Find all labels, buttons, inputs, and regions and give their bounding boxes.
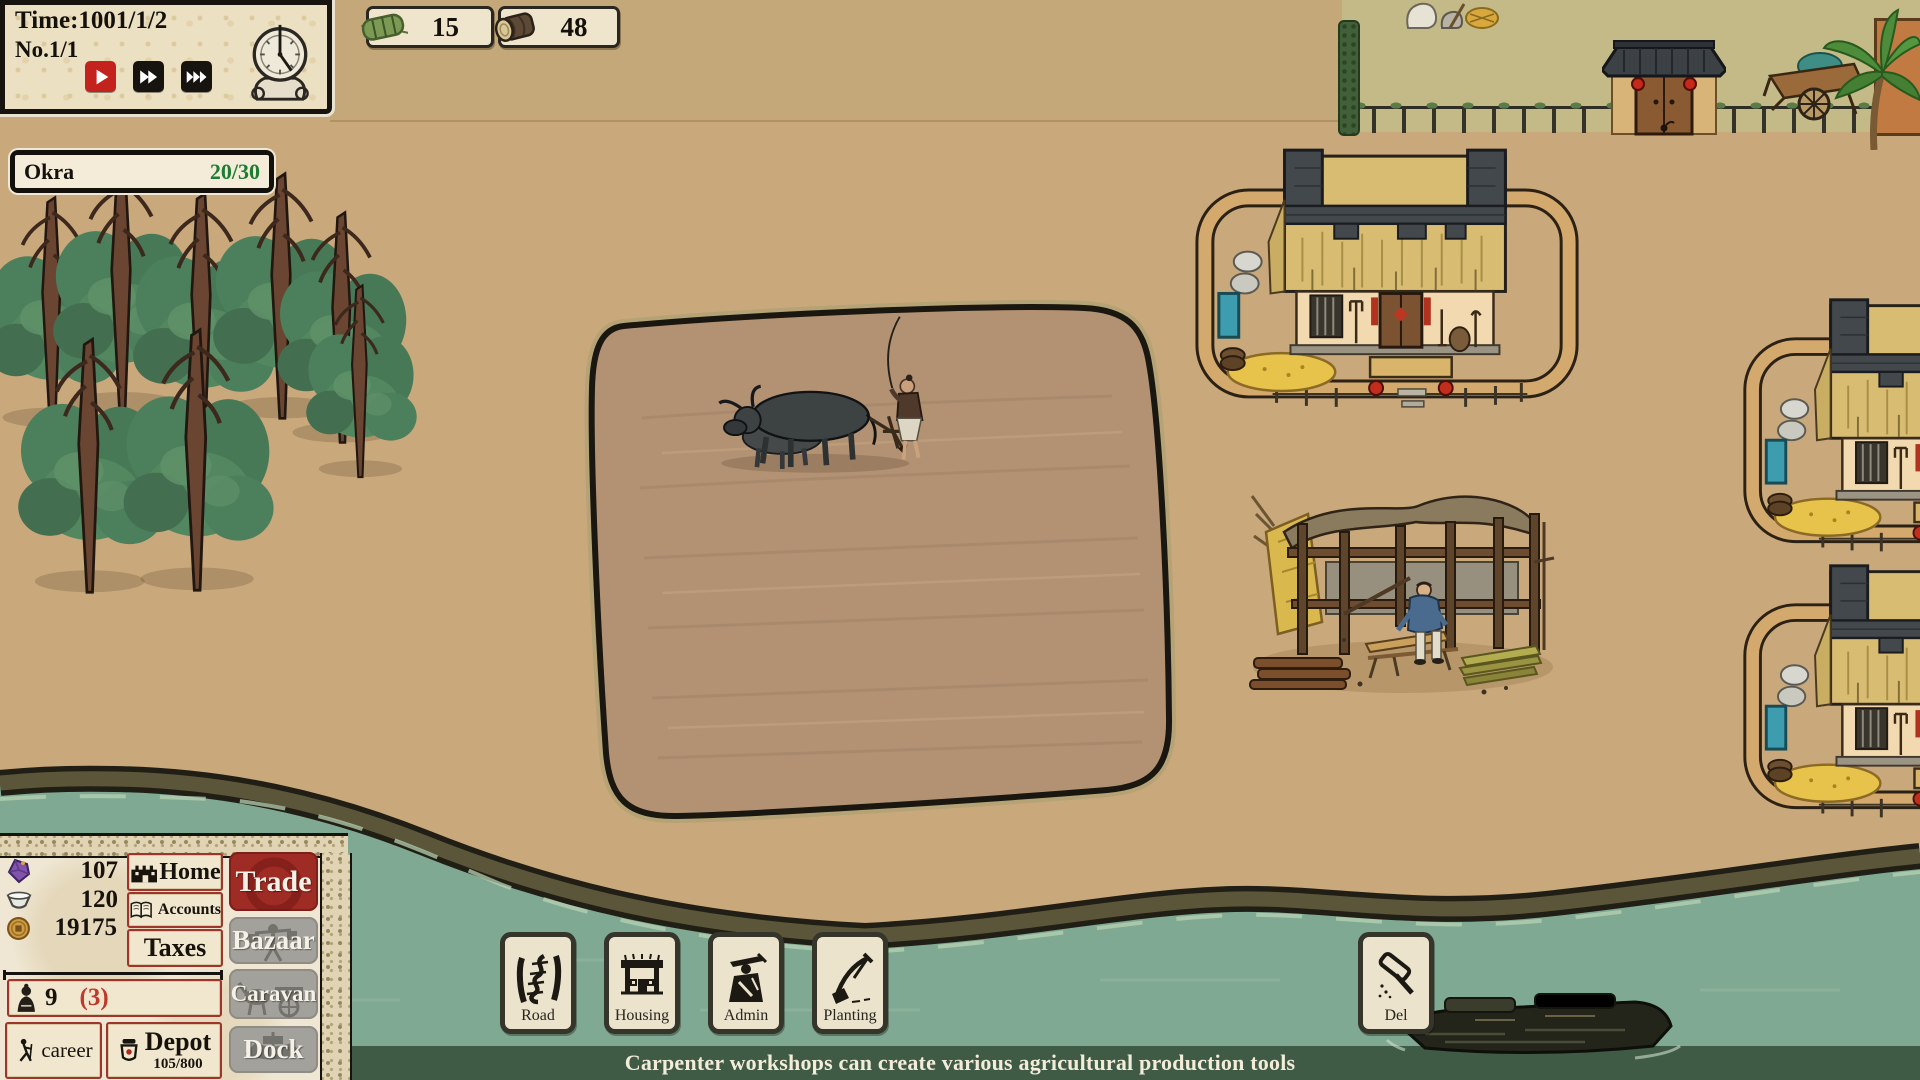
jar-icon [117,1037,141,1065]
round-label: No.1/1 [15,37,78,63]
play-button[interactable] [85,61,116,92]
hedge [1338,20,1360,136]
farmstead-east-1[interactable] [1733,292,1920,565]
plow-team[interactable] [693,305,928,475]
population-count: 9 [45,984,58,1012]
construction-site[interactable] [1248,462,1560,702]
selection-name: Okra [24,159,74,185]
resource-row-bowl: 120 [6,885,124,915]
fastest-forward-button[interactable] [181,61,212,92]
gem-count: 107 [32,857,118,885]
depot-label: Depot [145,1029,211,1055]
management-panel-frame-right [320,853,352,1080]
gate[interactable] [1602,40,1726,140]
walking-person-icon [14,1037,38,1064]
admin-icon [722,950,770,1006]
bowl-count: 120 [32,886,118,914]
taxes-button[interactable]: Taxes [127,929,223,967]
panel-divider [4,972,222,975]
coin-icon [6,916,31,941]
housing-icon [618,950,666,1006]
clock-icon [243,23,317,103]
planting-icon [826,950,874,1006]
road-icon [514,950,562,1006]
build-button-housing[interactable]: Housing [604,932,680,1034]
game-viewport: Carpenter workshops can create various a… [0,0,1920,1080]
depot-button[interactable]: Depot 105/800 [106,1022,222,1079]
dock-label: Dock [244,1034,304,1065]
time-label: Time:1001/1/2 [15,7,167,35]
pine-forest [0,150,480,620]
career-label: career [41,1038,92,1063]
fastest-forward-icon [184,66,210,88]
farmstead-east-2[interactable] [1733,558,1920,831]
caravan-button[interactable]: Caravan [229,969,318,1019]
accounts-label: Accounts [158,901,221,919]
delete-button[interactable]: Del [1358,932,1434,1034]
build-button-label: Planting [823,1008,876,1029]
trade-button[interactable]: Trade [229,852,318,911]
fast-forward-icon [137,66,161,88]
build-button-label: Admin [724,1008,768,1029]
home-button[interactable]: Home [127,853,223,891]
selection-bar[interactable]: Okra 20/30 [10,150,274,193]
selection-progress: 20/30 [210,159,260,185]
coin-count: 19175 [31,914,117,942]
depot-capacity: 105/800 [153,1057,202,1072]
delete-button-label: Del [1384,1008,1407,1029]
resource-row-coin: 19175 [6,913,124,943]
build-button-planting[interactable]: Planting [812,932,888,1034]
palm-tree [1822,0,1920,150]
dock-button[interactable]: Dock [229,1026,318,1073]
gem-icon [6,858,32,884]
home-label: Home [159,859,220,886]
resource-row-gem: 107 [6,856,124,886]
bowl-icon [6,888,32,912]
home-icon [129,860,161,884]
play-icon [90,66,112,88]
bazaar-label: Bazaar [232,925,314,956]
career-button[interactable]: career [5,1022,102,1079]
hammer-icon [1372,950,1420,1006]
person-icon [15,983,41,1013]
caravan-label: Caravan [231,981,317,1007]
build-button-admin[interactable]: Admin [708,932,784,1034]
resource-chip-straw: 15 [366,6,494,48]
resource-chip-wood: 48 [498,6,620,48]
farmstead-main[interactable] [1185,142,1593,421]
population-box[interactable]: 9 (3) [7,979,222,1017]
population-idle: (3) [80,984,109,1012]
log-icon [493,8,539,46]
trade-label: Trade [235,865,311,899]
accounts-icon [129,898,155,922]
wood-count: 48 [539,12,617,43]
build-button-label: Road [521,1008,555,1029]
time-panel: Time:1001/1/2 No.1/1 [0,0,332,114]
build-button-road[interactable]: Road [500,932,576,1034]
straw-count: 15 [408,12,491,43]
fast-forward-button[interactable] [133,61,164,92]
accounts-button[interactable]: Accounts [127,892,223,928]
bazaar-button[interactable]: Bazaar [229,917,318,964]
build-button-label: Housing [615,1008,669,1029]
straw-bundle-icon [360,8,408,46]
sacks-and-basket [1398,0,1508,30]
taxes-label: Taxes [144,933,207,963]
status-message: Carpenter workshops can create various a… [625,1050,1296,1076]
